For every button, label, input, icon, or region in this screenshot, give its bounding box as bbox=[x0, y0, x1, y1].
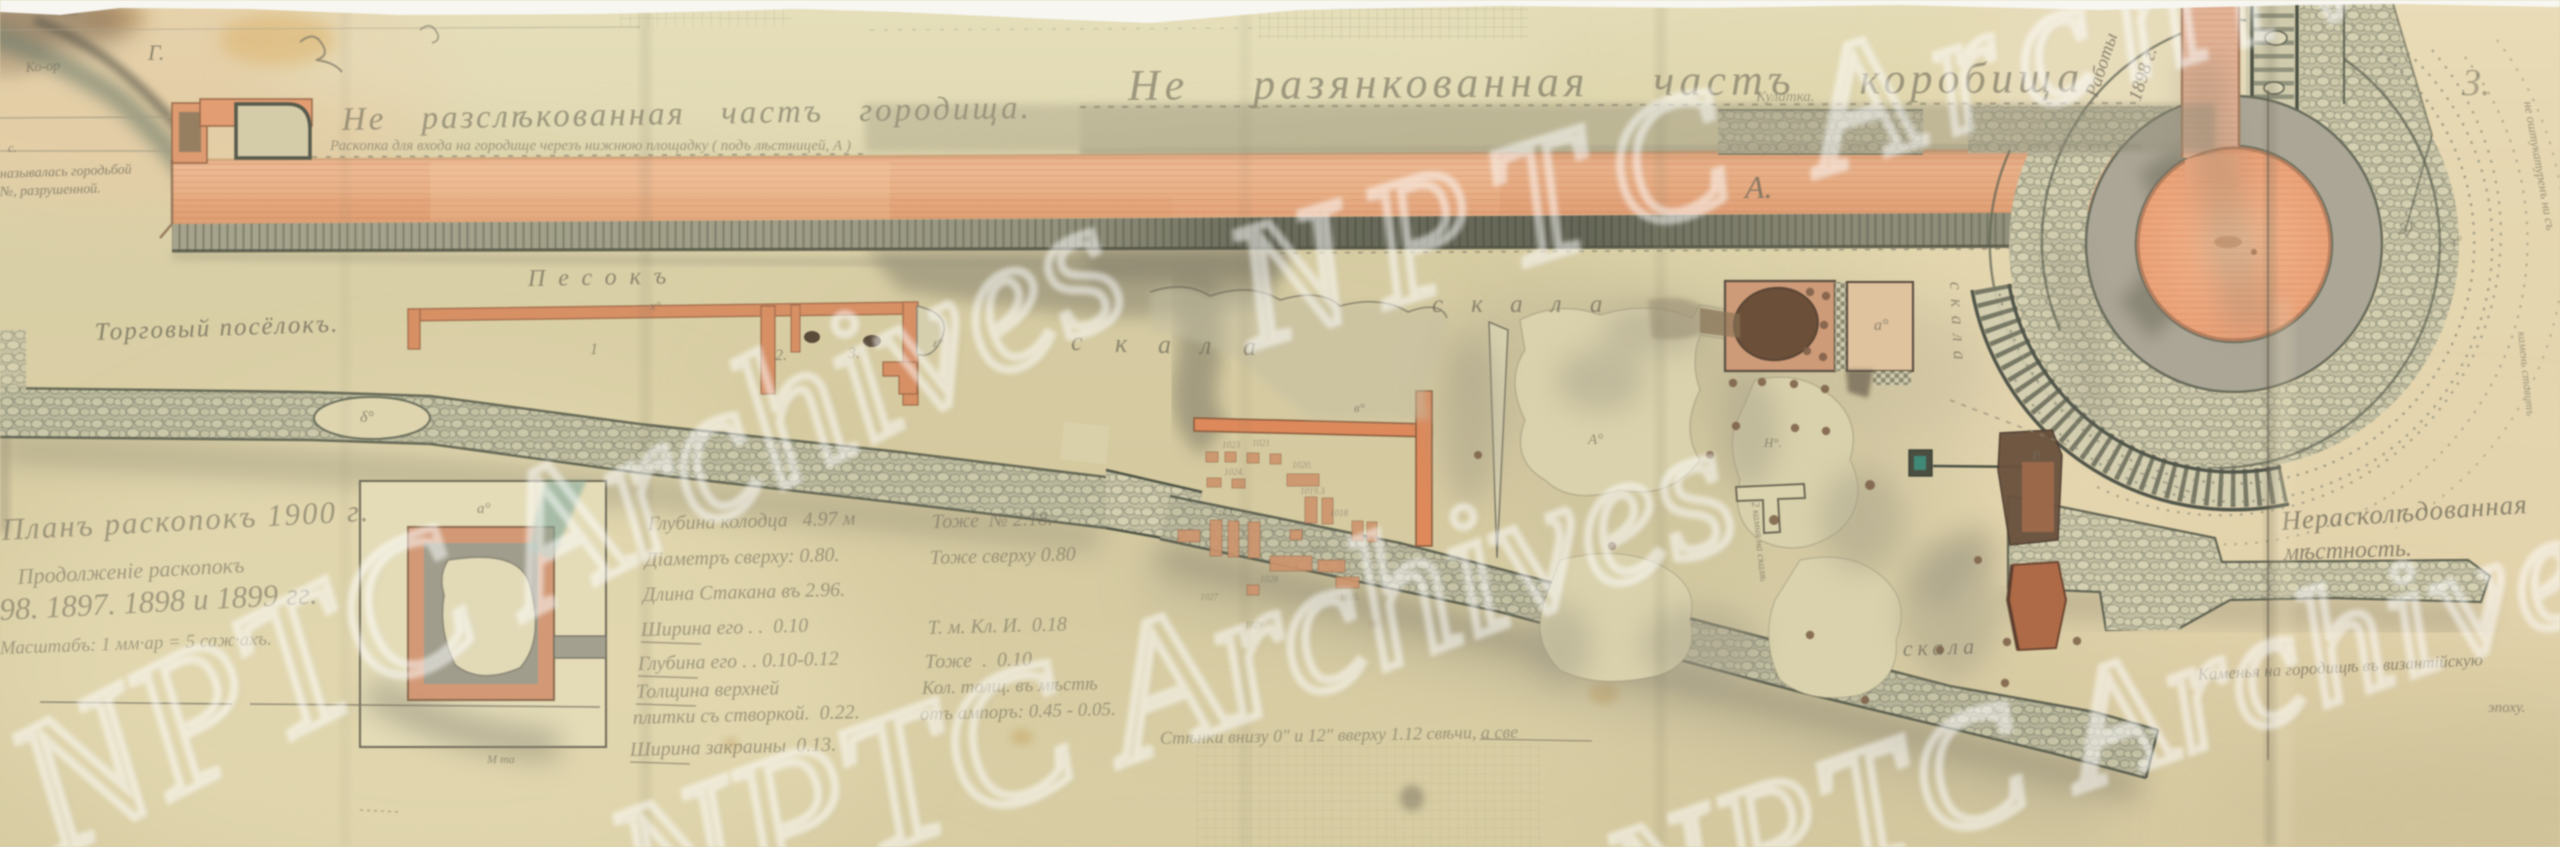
svg-text:1020.: 1020. bbox=[1292, 460, 1312, 470]
svg-text:эпоху.: эпоху. bbox=[2488, 700, 2525, 716]
svg-text:1023: 1023 bbox=[1222, 440, 1241, 450]
svg-text:Тоже сверху 0.80: Тоже сверху 0.80 bbox=[930, 543, 1076, 569]
svg-text:Песокъ: Песокъ bbox=[527, 263, 680, 292]
svg-text:в°: в° bbox=[1354, 400, 1365, 415]
svg-text:1: 1 bbox=[590, 341, 598, 358]
svg-text:Ко-ор: Ко-ор bbox=[24, 59, 60, 76]
svg-text:Ширина его . . 0.10: Ширина его . . 0.10 bbox=[640, 615, 809, 641]
svg-text:з°: з° bbox=[2449, 234, 2462, 250]
svg-text:Г.: Г. bbox=[147, 40, 164, 65]
svg-text:Н°.: Н°. bbox=[1763, 435, 1782, 450]
svg-text:Раскопка для входа на городище: Раскопка для входа на городище черезъ ни… bbox=[329, 138, 851, 154]
svg-text:δ°: δ° bbox=[360, 409, 374, 426]
svg-text:Тоже № 2.18.: Тоже № 2.18. bbox=[932, 508, 1054, 533]
svg-text:л: л bbox=[1198, 331, 1211, 360]
svg-text:Толщина верхней: Толщина верхней bbox=[636, 677, 780, 703]
svg-text:а°: а° bbox=[1874, 317, 1889, 334]
svg-text:М та: М та bbox=[486, 752, 515, 766]
svg-text:скала: скала bbox=[1902, 633, 1979, 661]
svg-text:х°: х° bbox=[649, 298, 661, 313]
svg-text:2⟩: 2⟩ bbox=[2398, 221, 2413, 238]
svg-text:З.: З. bbox=[2462, 62, 2490, 104]
svg-text:Р.: Р. bbox=[2031, 449, 2043, 464]
svg-text:1019.3: 1019.3 bbox=[1300, 486, 1325, 496]
svg-text:с.: с. bbox=[8, 140, 17, 155]
svg-text:1021: 1021 bbox=[1252, 438, 1270, 448]
svg-text:1022: 1022 bbox=[1218, 508, 1237, 518]
